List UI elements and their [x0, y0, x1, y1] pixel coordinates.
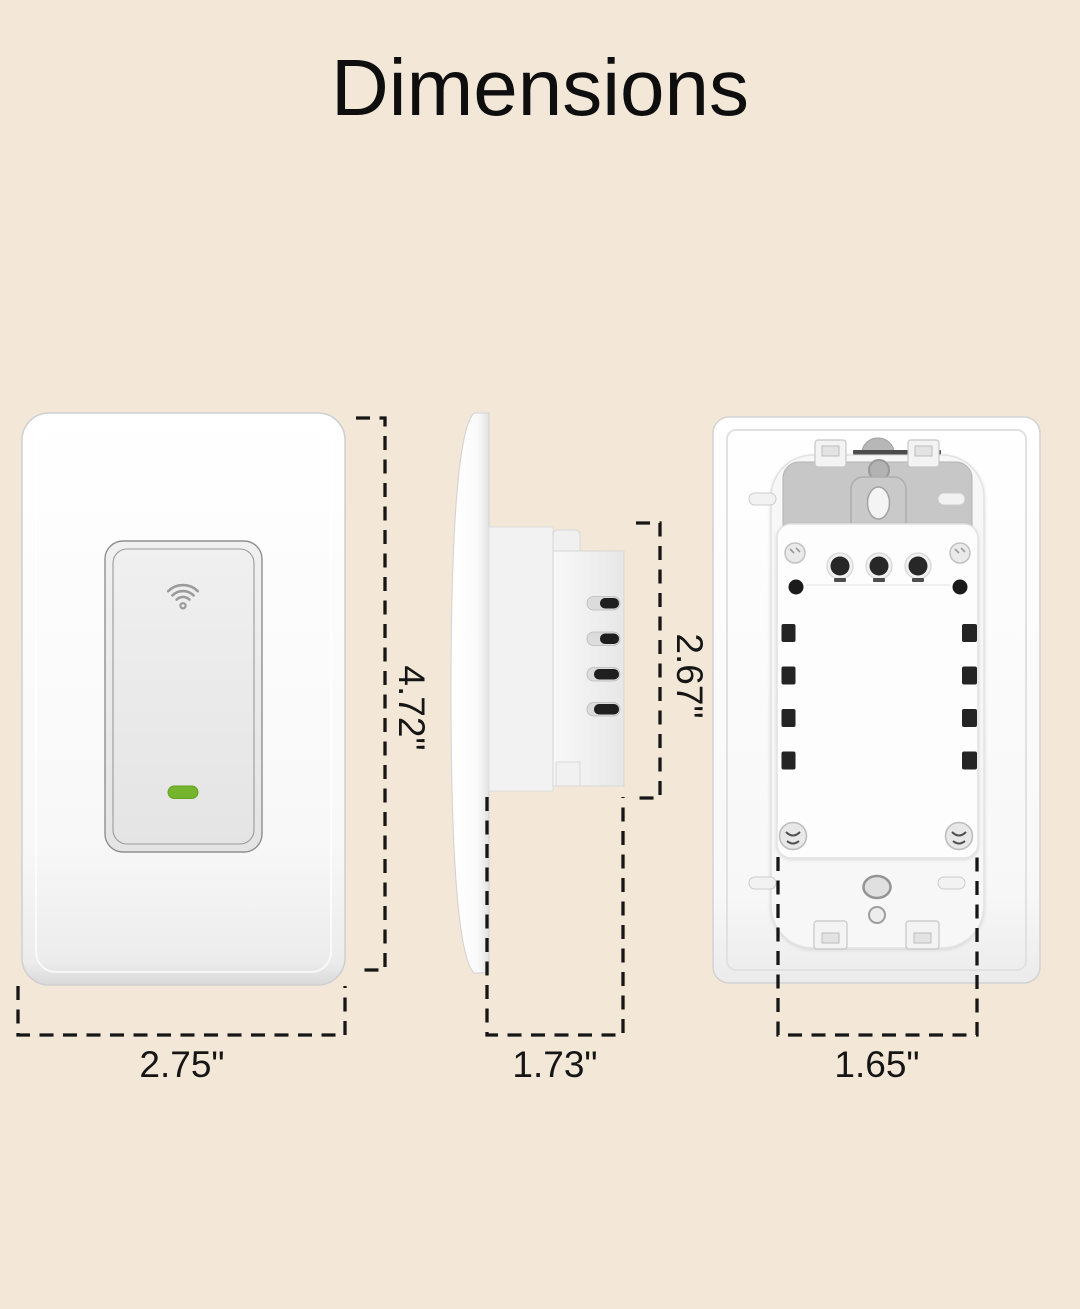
top-clip-left: [815, 440, 846, 467]
front-view: [22, 413, 345, 985]
dim-line-side-depth: [487, 797, 623, 1035]
back-view: [713, 417, 1040, 983]
side-top-clip: [553, 530, 580, 551]
switch-button: [105, 541, 262, 852]
bottom-oval-hole: [864, 876, 891, 898]
wire-terminal-holes: [827, 553, 931, 582]
dimensions-diagram: Dimensions: [0, 0, 1080, 1309]
dimension-label-front-height: 4.72": [389, 628, 433, 788]
dimension-label-back-width: 1.65": [727, 1043, 1027, 1087]
bracket-oval-slot: [868, 487, 890, 519]
side-bottom-clip: [556, 762, 580, 786]
dim-line-front-width: [18, 986, 345, 1035]
led-indicator: [168, 786, 198, 799]
bottom-small-hole: [869, 907, 885, 923]
dimension-label-side-depth: 1.73": [405, 1043, 705, 1087]
dimension-label-side-body-height: 2.67": [667, 596, 711, 756]
side-front-slab: [489, 527, 553, 791]
side-wall-plate: [451, 413, 489, 973]
bottom-clip-right: [906, 921, 939, 949]
dimension-label-front-width: 2.75": [32, 1043, 332, 1087]
dim-line-front-height: [356, 418, 385, 970]
product-views-drawing: [0, 0, 1080, 1309]
dim-line-side-body-height: [636, 523, 660, 798]
side-view: [451, 413, 624, 973]
top-clip-right: [908, 440, 939, 467]
bottom-clip-left: [814, 921, 847, 949]
